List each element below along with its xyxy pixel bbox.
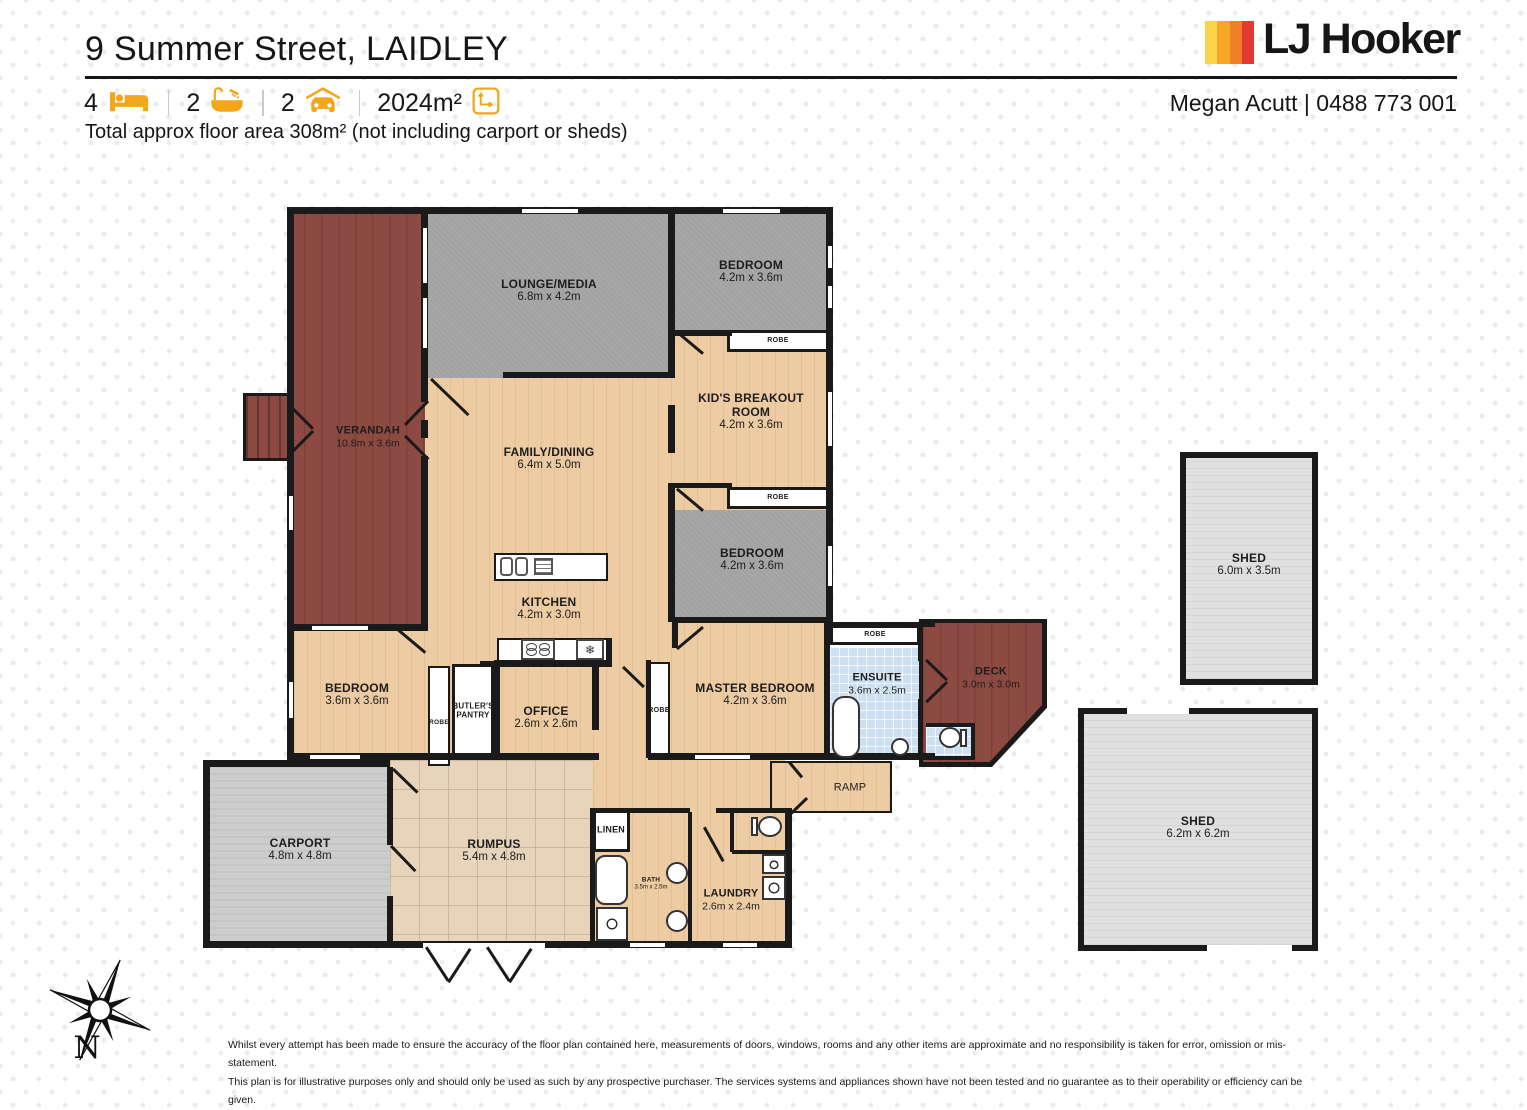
car-garage-icon bbox=[304, 86, 342, 121]
shower-icon bbox=[596, 907, 628, 941]
room-label-kids-breakout: KID'S BREAKOUT ROOM4.2m x 3.6m bbox=[686, 391, 816, 433]
disclaimer: Whilst every attempt has been made to en… bbox=[228, 1036, 1313, 1110]
room-label-family-dining: FAMILY/DINING6.4m x 5.0m bbox=[504, 445, 595, 473]
room-label-kitchen: KITCHEN4.2m x 3.0m bbox=[517, 595, 580, 623]
window bbox=[310, 755, 360, 759]
floor-plan-page: { "header": { "title": "9 Summer Street,… bbox=[0, 0, 1527, 1080]
fridge-snowflake-icon: ❄ bbox=[576, 639, 604, 660]
toilet-icon bbox=[939, 727, 961, 748]
window bbox=[289, 496, 293, 530]
wall bbox=[672, 622, 678, 648]
baths-count: 2 bbox=[186, 89, 200, 118]
basin-icon bbox=[666, 910, 688, 932]
wall bbox=[593, 808, 690, 813]
robe-label: ROBE bbox=[864, 631, 885, 639]
wall bbox=[421, 372, 428, 402]
room-label-ensuite: ENSUITE3.6m x 2.5m bbox=[848, 671, 906, 696]
window bbox=[695, 755, 750, 759]
sink-icon bbox=[500, 557, 513, 576]
room-label-bedroom-top: BEDROOM4.2m x 3.6m bbox=[719, 258, 783, 286]
window bbox=[289, 682, 293, 718]
wall bbox=[716, 808, 790, 813]
window bbox=[828, 392, 832, 446]
room-label-deck: DECK3.0m x 3.0m bbox=[962, 665, 1020, 690]
basin-icon bbox=[666, 862, 688, 884]
room-label-shed-bottom: SHED6.2m x 6.2m bbox=[1166, 814, 1229, 842]
door-swing bbox=[447, 948, 471, 983]
room-label-lounge: LOUNGE/MEDIA6.8m x 4.2m bbox=[501, 277, 597, 305]
toilet-icon bbox=[751, 817, 758, 836]
door-opening bbox=[423, 941, 545, 950]
room-label-master-bedroom: MASTER BEDROOM4.2m x 3.6m bbox=[695, 681, 814, 709]
room-label-butlers-pantry: BUTLER'S PANTRY bbox=[446, 702, 500, 721]
header-divider bbox=[85, 76, 1457, 79]
wall bbox=[918, 623, 923, 661]
window bbox=[630, 943, 665, 947]
stats-divider bbox=[262, 90, 264, 116]
door-swing bbox=[425, 947, 449, 982]
robe-label: ROBE bbox=[767, 337, 788, 345]
window bbox=[423, 228, 427, 283]
verandah-floor bbox=[287, 207, 425, 631]
room-label-rumpus: RUMPUS5.4m x 4.8m bbox=[462, 837, 525, 865]
property-stats: 4 2 2 2024m² bbox=[84, 86, 501, 120]
window bbox=[1127, 708, 1189, 714]
floor-area-note: Total approx floor area 308m² (not inclu… bbox=[85, 121, 628, 144]
window bbox=[1207, 945, 1292, 951]
room-label-ramp: RAMP bbox=[834, 782, 867, 795]
room-label-bedroom-mid: BEDROOM4.2m x 3.6m bbox=[720, 546, 784, 574]
wall bbox=[421, 420, 428, 438]
laundry-tub-icon bbox=[762, 854, 786, 874]
washer-icon bbox=[762, 876, 786, 900]
stats-divider bbox=[359, 90, 361, 116]
wall bbox=[387, 767, 393, 845]
wall bbox=[918, 699, 923, 760]
window bbox=[723, 209, 780, 213]
room-label-verandah: VERANDAH10.8m x 3.6m bbox=[336, 424, 400, 449]
wall bbox=[387, 896, 393, 948]
door-swing bbox=[508, 948, 532, 983]
beds-count: 4 bbox=[84, 89, 98, 118]
wall bbox=[287, 207, 294, 631]
cars-count: 2 bbox=[281, 89, 295, 118]
bathtub-icon bbox=[595, 855, 628, 905]
robe-label: ROBE bbox=[429, 719, 449, 727]
drainer-icon bbox=[534, 558, 553, 575]
room-label-bedroom-left: BEDROOM3.6m x 3.6m bbox=[325, 681, 389, 709]
room-label-carport: CARPORT4.8m x 4.8m bbox=[268, 836, 331, 864]
disclaimer-line-2: This plan is for illustrative purposes o… bbox=[228, 1073, 1313, 1110]
bed-icon bbox=[107, 86, 151, 121]
wall bbox=[203, 760, 210, 948]
verandah-steps bbox=[243, 393, 293, 461]
wall bbox=[592, 665, 599, 730]
land-area-value: 2024m² bbox=[377, 89, 462, 118]
wall bbox=[824, 622, 830, 760]
window bbox=[423, 298, 427, 348]
window bbox=[312, 626, 368, 630]
wall bbox=[688, 812, 692, 941]
toilet-icon bbox=[758, 816, 782, 837]
window bbox=[828, 246, 832, 268]
wall bbox=[668, 207, 675, 378]
bath-icon bbox=[209, 86, 245, 121]
wall bbox=[668, 405, 675, 453]
window bbox=[723, 943, 757, 947]
disclaimer-line-1: Whilst every attempt has been made to en… bbox=[228, 1036, 1313, 1073]
window bbox=[828, 546, 832, 586]
room-label-office: OFFICE2.6m x 2.6m bbox=[514, 704, 577, 732]
wall bbox=[730, 808, 734, 852]
wall bbox=[668, 488, 675, 622]
agent-contact: Megan Acutt | 0488 773 001 bbox=[1170, 90, 1457, 117]
cooktop-icon bbox=[521, 639, 555, 660]
wall bbox=[648, 753, 935, 760]
ljhooker-logo-icon bbox=[1205, 21, 1254, 64]
window bbox=[522, 209, 578, 213]
room-label-linen: LINEN bbox=[597, 825, 625, 836]
robe-label: ROBE bbox=[767, 494, 788, 502]
ramp-floor bbox=[770, 761, 892, 813]
wall bbox=[203, 760, 390, 767]
wall bbox=[675, 617, 832, 623]
sink-icon bbox=[515, 557, 528, 576]
window bbox=[828, 286, 832, 308]
room-label-laundry: LAUNDRY2.6m x 2.4m bbox=[702, 887, 760, 912]
robe-label: ROBE bbox=[648, 707, 669, 715]
stats-divider bbox=[168, 90, 170, 116]
wall bbox=[421, 456, 428, 631]
basin-icon bbox=[891, 738, 909, 756]
page-title: 9 Summer Street, LAIDLEY bbox=[85, 30, 508, 69]
wall bbox=[503, 372, 672, 378]
room-label-bath: BATH3.5m x 2.5m bbox=[634, 877, 667, 892]
brand-name: LJ Hooker bbox=[1263, 15, 1460, 64]
compass-north-label: N bbox=[62, 1030, 112, 1066]
bathtub-icon bbox=[832, 696, 860, 758]
toilet-icon bbox=[960, 729, 967, 747]
room-label-shed-top: SHED6.0m x 3.5m bbox=[1217, 551, 1280, 579]
wall bbox=[785, 808, 792, 948]
door-swing bbox=[486, 947, 510, 982]
land-measure-icon bbox=[471, 86, 501, 121]
